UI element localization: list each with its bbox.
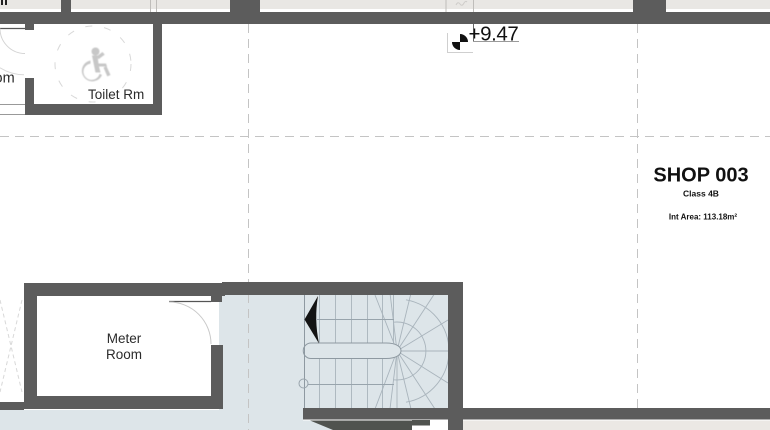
svg-text:Int Area: 113.18m²: Int Area: 113.18m² bbox=[669, 213, 738, 222]
svg-text:SHOP 003: SHOP 003 bbox=[653, 165, 748, 187]
svg-text:Toilet Rm: Toilet Rm bbox=[88, 87, 144, 102]
svg-text:+9.47: +9.47 bbox=[469, 23, 519, 46]
svg-text:Class 4B: Class 4B bbox=[683, 189, 719, 199]
svg-text:Meter: Meter bbox=[107, 331, 142, 346]
svg-text:Room: Room bbox=[106, 347, 142, 362]
svg-text:om: om bbox=[0, 71, 15, 87]
